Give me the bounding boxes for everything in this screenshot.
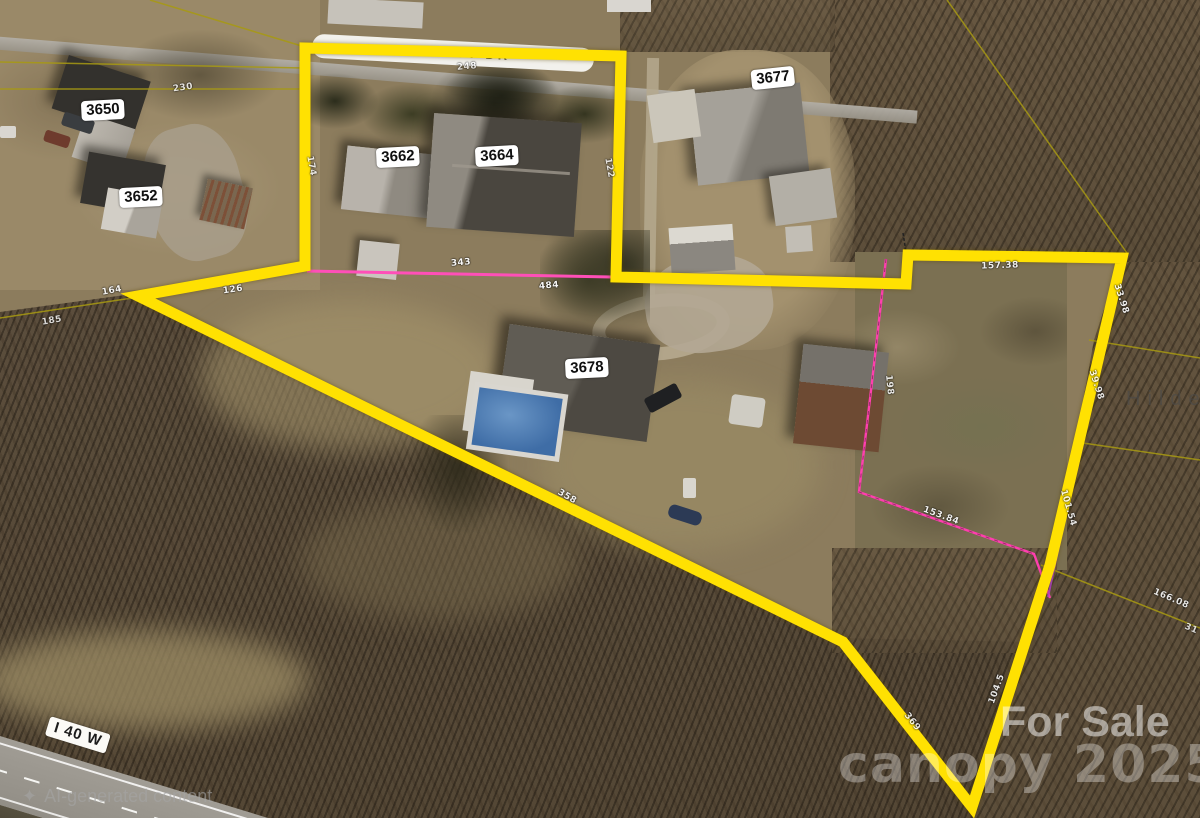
tree-cluster-center — [540, 230, 650, 330]
shed-3677-d — [785, 225, 813, 253]
woods-mid-right — [832, 548, 1057, 653]
woods-top-strip — [620, 0, 835, 52]
dimension-label: 122 — [602, 157, 615, 179]
shed-3677-a — [647, 89, 701, 143]
car-white-left-edge — [0, 126, 16, 138]
shed-3662 — [356, 240, 400, 280]
house-3662 — [341, 145, 437, 218]
aerial-map-canvas: BURNETT DR 24823017412216412618534348435… — [0, 0, 1200, 818]
object-white-small — [683, 478, 696, 498]
equipment-white-3678 — [728, 394, 766, 428]
barn-3678 — [793, 344, 889, 452]
dimension-label: 343 — [450, 257, 471, 269]
brand-watermark: canopy 2025 — [838, 735, 1200, 795]
scrub-parcel-pink — [855, 252, 1067, 570]
sparkle-icon: ✦ — [22, 786, 37, 807]
ai-generated-text: AI-generated content — [44, 786, 212, 807]
ai-generated-badge: ✦ AI-generated content — [22, 786, 212, 807]
swimming-pool — [471, 387, 562, 456]
mobile-home-top-edge — [327, 0, 423, 28]
shed-3677-c — [668, 224, 735, 274]
trailer-top-edge — [607, 0, 651, 12]
house-3664 — [426, 113, 582, 237]
house-3677 — [688, 82, 809, 185]
shed-3677-b — [769, 168, 837, 226]
town-name-label: Hildeb — [1126, 388, 1200, 411]
woods-top-right — [830, 0, 1200, 262]
tree-shadow-topleft — [120, 30, 280, 120]
